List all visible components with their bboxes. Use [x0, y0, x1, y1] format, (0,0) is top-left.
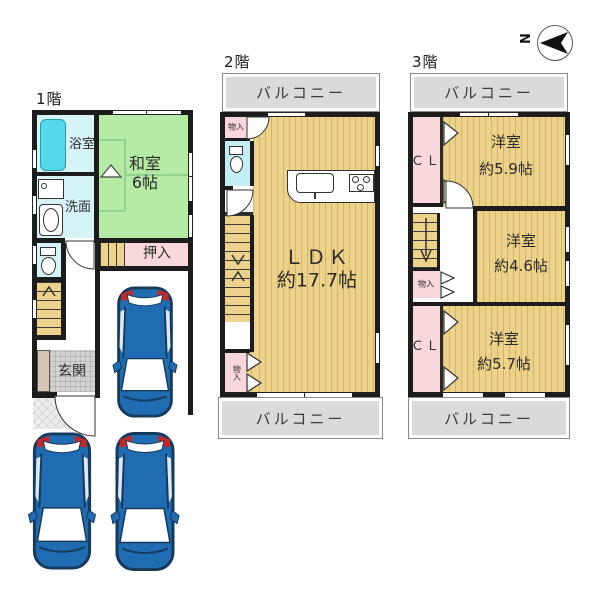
- balcony-3f-bottom: バルコニー: [408, 397, 570, 439]
- room-59-size-label: 約5.9帖: [479, 161, 533, 178]
- window: [32, 246, 37, 264]
- balcony-2f-top: バルコニー: [222, 73, 380, 112]
- balcony-3f-bottom-label: バルコニー: [444, 408, 534, 429]
- stairs-2f-landing: [225, 322, 253, 352]
- compass-arrow-icon: [537, 25, 573, 61]
- toilet2f-tank: [229, 146, 243, 155]
- compass-north-label: N: [519, 33, 534, 44]
- closet-3f-top-bifold-a: [443, 121, 459, 146]
- window: [32, 196, 37, 214]
- room-46-size-label: 約4.6帖: [494, 258, 548, 275]
- ldk-size-label: 約17.7帖: [277, 271, 357, 292]
- room-57-size-label: 約5.7帖: [477, 356, 531, 373]
- storage-3f-label: 物入: [418, 281, 434, 290]
- toilet2f-door-swing: [227, 190, 253, 216]
- front-door-swing: [55, 396, 95, 436]
- window: [565, 227, 570, 252]
- floor3-title: 3階: [412, 54, 439, 71]
- window: [375, 333, 380, 363]
- window: [565, 135, 570, 165]
- closet-3f-bottom-bifold-a: [443, 310, 459, 335]
- window: [188, 153, 193, 201]
- window: [268, 112, 305, 117]
- balcony-3f-top-label: バルコニー: [444, 82, 534, 103]
- tatami-line: [99, 139, 125, 141]
- closet-3f-top-label: ＣＬ: [411, 155, 441, 169]
- floorplan-canvas: N 1階: [0, 0, 600, 599]
- balcony-3f-top: バルコニー: [410, 73, 568, 112]
- balcony-door-swing-2f: [247, 117, 269, 139]
- kitchen-sink: [296, 173, 334, 193]
- tatami-size-label: 6帖: [132, 174, 158, 192]
- genkan-label: 玄関: [58, 364, 86, 379]
- floor1-title: 1階: [36, 91, 63, 108]
- storage-2f-top-label: 物入: [228, 124, 244, 133]
- window: [32, 150, 37, 168]
- toilet1f-tank: [40, 247, 56, 256]
- stairs-3f-arrow: [419, 216, 433, 266]
- window: [32, 300, 37, 318]
- stove-burner: [352, 176, 359, 183]
- washing-machine-drum: [43, 208, 59, 232]
- washbasin-faucet: [41, 183, 47, 189]
- room-57-label: 洋室: [489, 331, 519, 348]
- stove-burner: [357, 184, 364, 191]
- shoe-cabinet: [37, 350, 50, 392]
- window: [375, 146, 380, 166]
- bath-label: 浴室: [69, 138, 95, 152]
- bathtub: [40, 119, 66, 171]
- window: [460, 112, 518, 117]
- closet-3f-bottom-label: ＣＬ: [411, 340, 441, 354]
- room-59-door-swing: [446, 181, 473, 208]
- storage-3f-bifold-door: [440, 271, 455, 299]
- window: [188, 215, 193, 237]
- stove-burner: [363, 176, 370, 183]
- stairs-1f-arrow: [41, 285, 57, 297]
- storage-2f-bottom-label: 物入: [232, 365, 241, 381]
- closet-3f-bottom-bifold-b: [443, 366, 459, 391]
- floor2-title: 2階: [224, 54, 251, 71]
- hall-door-swing: [66, 241, 94, 269]
- washbasin: [38, 179, 64, 199]
- washroom-label: 洗面: [65, 201, 91, 215]
- window: [113, 110, 181, 115]
- oshiire-label: 押入: [143, 246, 171, 261]
- balcony-2f-top-label: バルコニー: [256, 82, 346, 103]
- car-parking-left: [27, 431, 97, 571]
- balcony-2f-bottom-label: バルコニー: [256, 408, 346, 429]
- car-parking-right: [110, 430, 180, 573]
- room-46-label: 洋室: [506, 233, 536, 250]
- step-landing: [100, 241, 125, 267]
- tatami-room-label: 和室: [129, 155, 161, 173]
- room-59-label: 洋室: [491, 134, 521, 151]
- kitchen-faucet: [314, 193, 316, 199]
- window: [565, 261, 570, 286]
- ldk-label: ＬＤＫ: [284, 246, 350, 268]
- car-garage: [112, 281, 178, 423]
- tatami-line: [99, 210, 125, 212]
- bath-folding-door: [100, 164, 122, 178]
- room-57-floor: [443, 306, 565, 392]
- storage-2f-bifold-door: [246, 352, 262, 393]
- window: [565, 325, 570, 365]
- balcony-2f-bottom: バルコニー: [218, 397, 383, 439]
- stairs-2f-arrows: [230, 253, 246, 283]
